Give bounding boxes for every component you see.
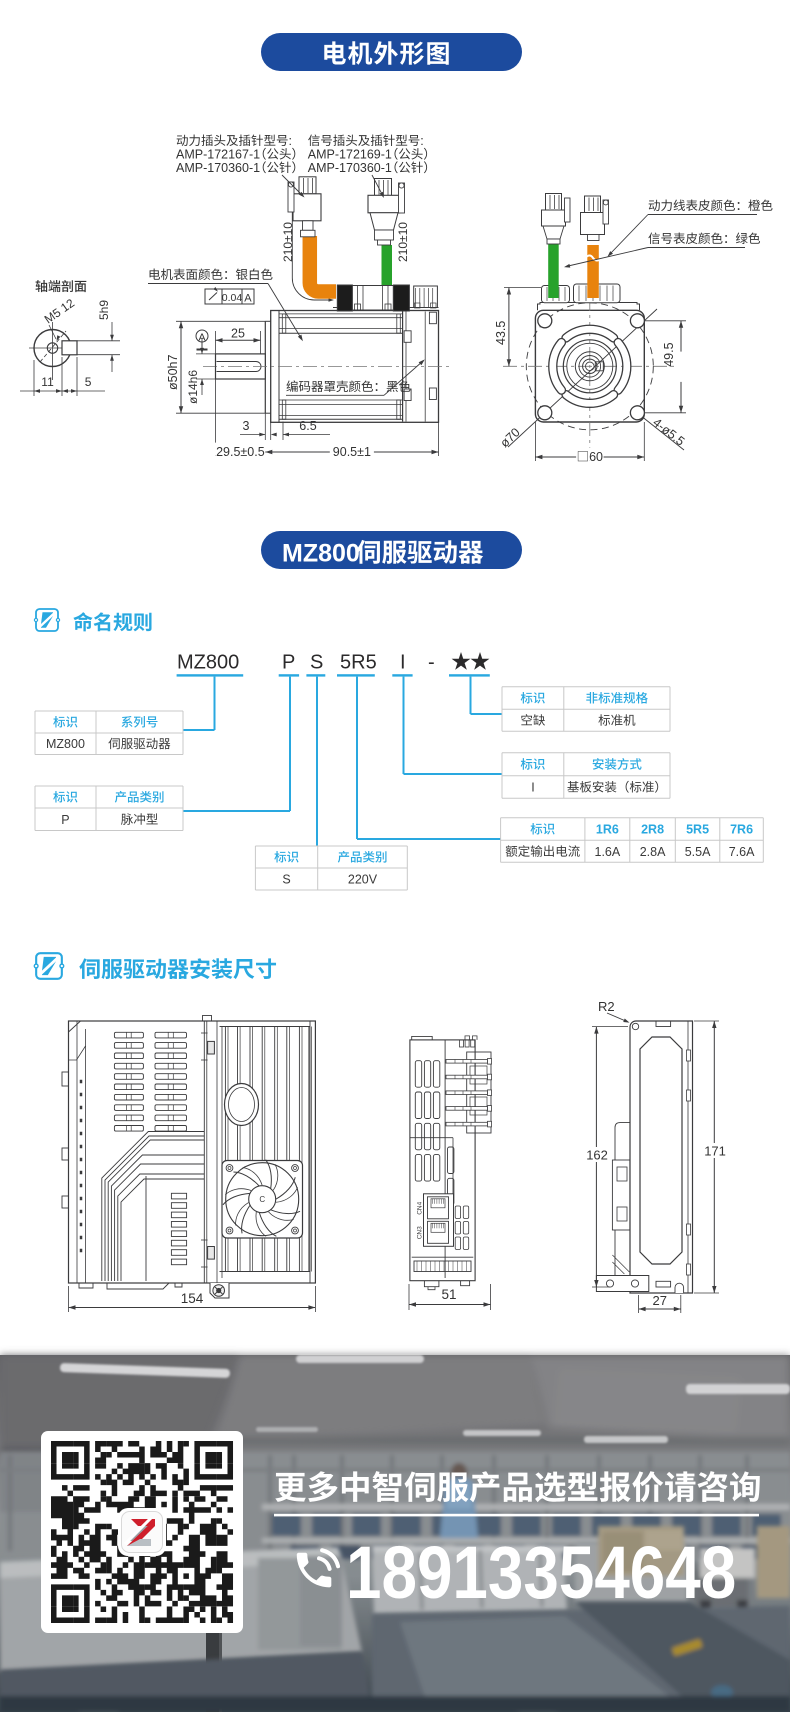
svg-text:162: 162 bbox=[586, 1148, 608, 1163]
svg-text:6.5: 6.5 bbox=[299, 419, 316, 433]
svg-text:25: 25 bbox=[231, 326, 245, 340]
svg-text:5h9: 5h9 bbox=[97, 300, 111, 320]
svg-text:CN4: CN4 bbox=[417, 1201, 424, 1214]
svg-text:43.5: 43.5 bbox=[494, 321, 508, 345]
svg-text:0.04: 0.04 bbox=[222, 292, 243, 304]
svg-text:AMP-172169-1: AMP-172169-1 bbox=[308, 148, 392, 162]
svg-text:AMP-170360-1: AMP-170360-1 bbox=[308, 161, 392, 175]
svg-text::: : bbox=[289, 134, 292, 148]
svg-text:ø50h7: ø50h7 bbox=[166, 355, 180, 390]
svg-text:210±10: 210±10 bbox=[281, 222, 295, 262]
svg-text:51: 51 bbox=[442, 1287, 457, 1302]
svg-text:1.6A: 1.6A bbox=[595, 845, 621, 859]
svg-text:7.6A: 7.6A bbox=[729, 845, 755, 859]
svg-text:210±10: 210±10 bbox=[396, 222, 410, 262]
svg-text:154: 154 bbox=[181, 1291, 204, 1306]
svg-text:I: I bbox=[531, 781, 534, 795]
svg-text:49.5: 49.5 bbox=[662, 342, 676, 366]
svg-text:P: P bbox=[61, 813, 69, 827]
svg-text:S: S bbox=[282, 873, 290, 887]
svg-text:A: A bbox=[244, 293, 252, 305]
svg-text:R2: R2 bbox=[598, 999, 615, 1014]
svg-text:1R6: 1R6 bbox=[596, 823, 619, 837]
svg-text:CN3: CN3 bbox=[417, 1226, 424, 1239]
svg-text:5R5: 5R5 bbox=[686, 823, 709, 837]
svg-text:MZ800: MZ800 bbox=[46, 737, 85, 751]
svg-text:11: 11 bbox=[41, 375, 54, 389]
svg-text:7R6: 7R6 bbox=[730, 823, 753, 837]
svg-text:-: - bbox=[428, 652, 435, 674]
svg-text:ø70: ø70 bbox=[497, 425, 522, 450]
svg-text:5: 5 bbox=[85, 375, 92, 389]
svg-text:60: 60 bbox=[589, 450, 603, 464]
svg-text:18913354648: 18913354648 bbox=[346, 1531, 736, 1615]
svg-text:3: 3 bbox=[243, 419, 250, 433]
svg-text:AMP-172167-1: AMP-172167-1 bbox=[176, 148, 260, 162]
svg-text:4-ø5.5: 4-ø5.5 bbox=[650, 415, 687, 448]
svg-text:M5 12: M5 12 bbox=[42, 296, 78, 327]
svg-text:171: 171 bbox=[704, 1144, 726, 1159]
svg-text:C: C bbox=[259, 1195, 265, 1204]
svg-text:S: S bbox=[310, 652, 323, 674]
svg-text:90.5±1: 90.5±1 bbox=[333, 445, 371, 459]
svg-text:2.8A: 2.8A bbox=[640, 845, 666, 859]
svg-text:AMP-170360-1: AMP-170360-1 bbox=[176, 161, 260, 175]
svg-text:220V: 220V bbox=[348, 873, 378, 887]
svg-text:I: I bbox=[400, 652, 406, 674]
svg-text:27: 27 bbox=[653, 1293, 667, 1308]
svg-text:2R8: 2R8 bbox=[641, 823, 664, 837]
svg-text:MZ800: MZ800 bbox=[177, 652, 239, 674]
svg-text:ø14h6: ø14h6 bbox=[186, 370, 200, 404]
svg-text:5R5: 5R5 bbox=[340, 652, 377, 674]
svg-text:5.5A: 5.5A bbox=[685, 845, 711, 859]
svg-text:MZ800: MZ800 bbox=[282, 540, 360, 568]
svg-text::: : bbox=[420, 134, 423, 148]
svg-text:29.5±0.5: 29.5±0.5 bbox=[216, 445, 265, 459]
svg-text:P: P bbox=[282, 652, 295, 674]
